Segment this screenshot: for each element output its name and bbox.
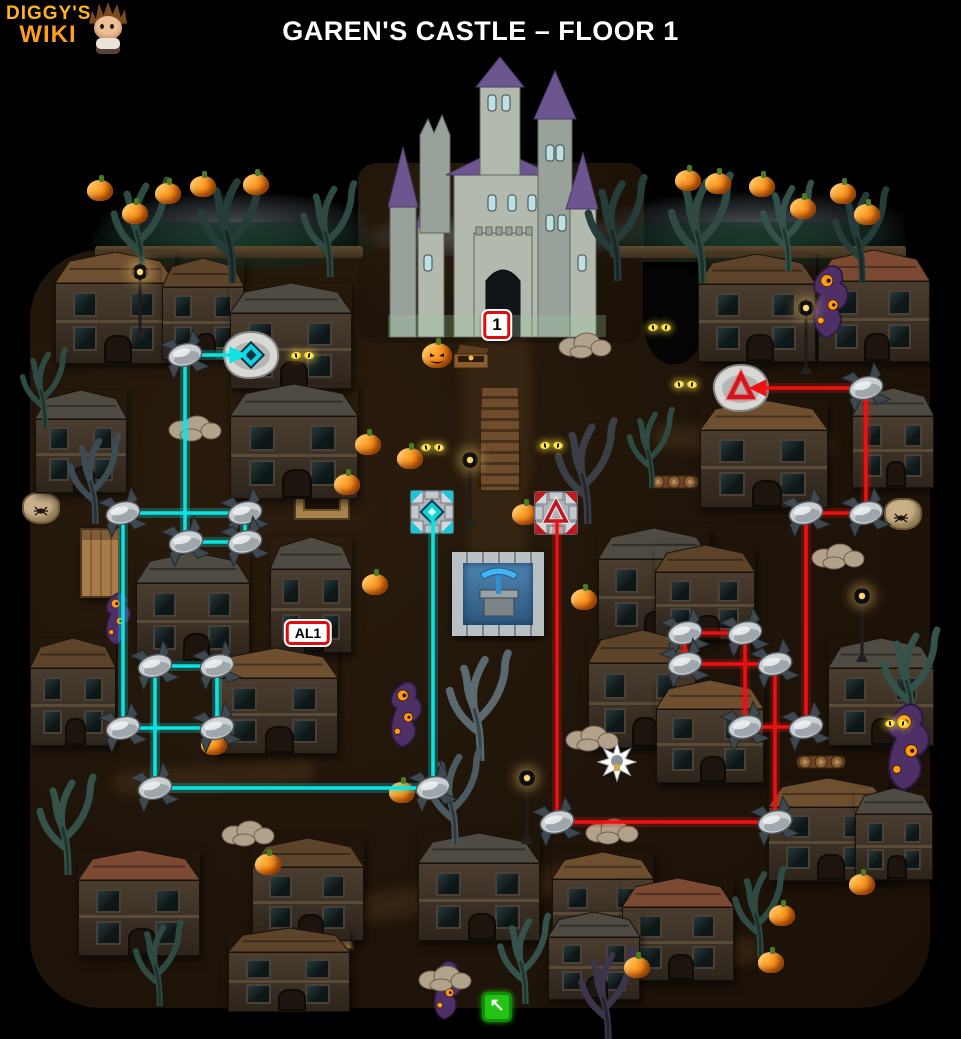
log-pile-icon xyxy=(795,748,847,770)
fountain xyxy=(452,552,544,636)
house xyxy=(214,648,338,754)
pumpkin-icon xyxy=(87,180,113,201)
tree-icon xyxy=(422,740,489,845)
tentacle-monster-icon xyxy=(872,690,934,795)
map: DIGGY'S WIKI GAREN'S CASTLE – FLOOR 1 1A… xyxy=(0,0,961,1039)
chest-icon xyxy=(450,342,494,372)
glowing-eyes-icon xyxy=(421,444,445,453)
pumpkin-icon xyxy=(255,854,281,875)
rock-icon xyxy=(167,408,223,442)
pumpkin-icon xyxy=(355,434,381,455)
spider-icon xyxy=(33,505,49,517)
tentacle-monster-icon xyxy=(95,585,135,647)
house xyxy=(656,680,764,783)
pumpkin-icon xyxy=(790,198,816,219)
rock-icon xyxy=(584,811,640,845)
house xyxy=(136,552,250,662)
glowing-eyes-icon xyxy=(540,442,564,451)
glowing-eyes-icon xyxy=(885,720,909,729)
glowing-eyes-icon xyxy=(674,381,698,390)
jack-o-lantern-icon xyxy=(422,343,452,368)
exit-arrow-icon: ↖ xyxy=(482,992,512,1022)
pumpkin-icon xyxy=(243,174,269,195)
pumpkin-icon xyxy=(571,589,597,610)
tentacle-monster-icon xyxy=(378,672,426,750)
glowing-eyes-icon xyxy=(648,324,672,333)
pumpkin-icon xyxy=(201,734,227,755)
page-title: GAREN'S CASTLE – FLOOR 1 xyxy=(0,16,961,47)
marker-al1: AL1 xyxy=(286,621,330,645)
castle-illustration xyxy=(388,55,606,347)
rock-icon xyxy=(810,536,866,570)
tree-icon xyxy=(575,938,642,1039)
spider-icon xyxy=(893,512,909,524)
pumpkin-icon xyxy=(190,176,216,197)
house xyxy=(855,788,933,880)
house xyxy=(852,388,934,488)
lamppost-icon xyxy=(130,262,150,340)
lamppost-icon xyxy=(460,450,480,528)
pumpkin-icon xyxy=(758,952,784,973)
house xyxy=(30,638,116,746)
rock-icon xyxy=(557,325,613,359)
lamppost-icon xyxy=(852,586,872,664)
tree-icon xyxy=(494,905,557,1004)
pumpkin-icon xyxy=(749,176,775,197)
pumpkin-icon xyxy=(362,574,388,595)
pumpkin-icon xyxy=(854,204,880,225)
tree-icon xyxy=(17,340,73,428)
marker-castle-floor-1: 1 xyxy=(483,311,510,339)
pumpkin-icon xyxy=(675,170,701,191)
pumpkin-icon xyxy=(334,474,360,495)
lamppost-icon xyxy=(517,768,537,846)
pumpkin-icon xyxy=(705,173,731,194)
pumpkin-icon xyxy=(512,504,538,525)
pumpkin-icon xyxy=(849,874,875,895)
tree-icon xyxy=(624,400,680,488)
spawn-burst-icon xyxy=(597,742,637,782)
lamppost-icon xyxy=(796,298,816,376)
house xyxy=(655,545,755,640)
pumpkin-icon xyxy=(830,183,856,204)
tree-icon xyxy=(297,172,364,277)
pumpkin-icon xyxy=(122,203,148,224)
pumpkin-icon xyxy=(397,448,423,469)
tree-icon xyxy=(581,165,655,281)
pumpkin-icon xyxy=(389,782,415,803)
pumpkin-icon xyxy=(155,183,181,204)
tree-icon xyxy=(64,425,127,524)
spider-icon xyxy=(748,360,764,372)
glowing-eyes-icon xyxy=(291,352,315,361)
house xyxy=(228,928,350,1012)
house xyxy=(230,283,352,389)
bridge xyxy=(478,388,522,490)
pumpkin-icon xyxy=(624,957,650,978)
house xyxy=(700,400,828,508)
tree-icon xyxy=(130,912,190,1006)
tree-icon xyxy=(551,408,625,524)
pumpkin-icon xyxy=(769,905,795,926)
rock-icon xyxy=(417,958,473,992)
tree-icon xyxy=(33,765,103,875)
rock-icon xyxy=(220,813,276,847)
